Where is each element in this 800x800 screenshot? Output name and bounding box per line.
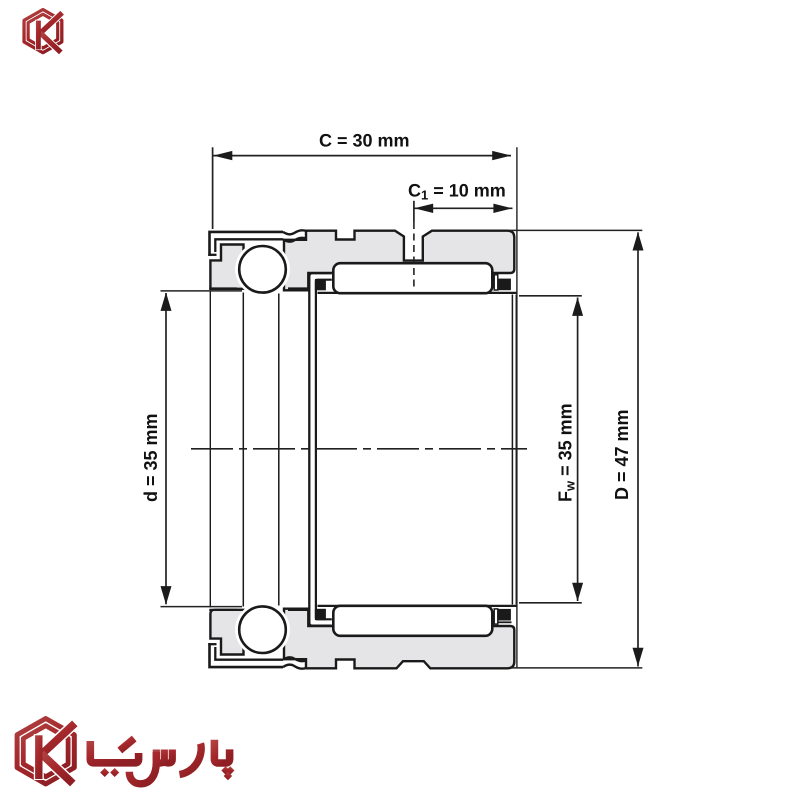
svg-text:C = 30 mm: C = 30 mm xyxy=(319,130,410,150)
svg-text:d = 35 mm: d = 35 mm xyxy=(141,413,161,502)
svg-text:D = 47 mm: D = 47 mm xyxy=(612,409,632,500)
